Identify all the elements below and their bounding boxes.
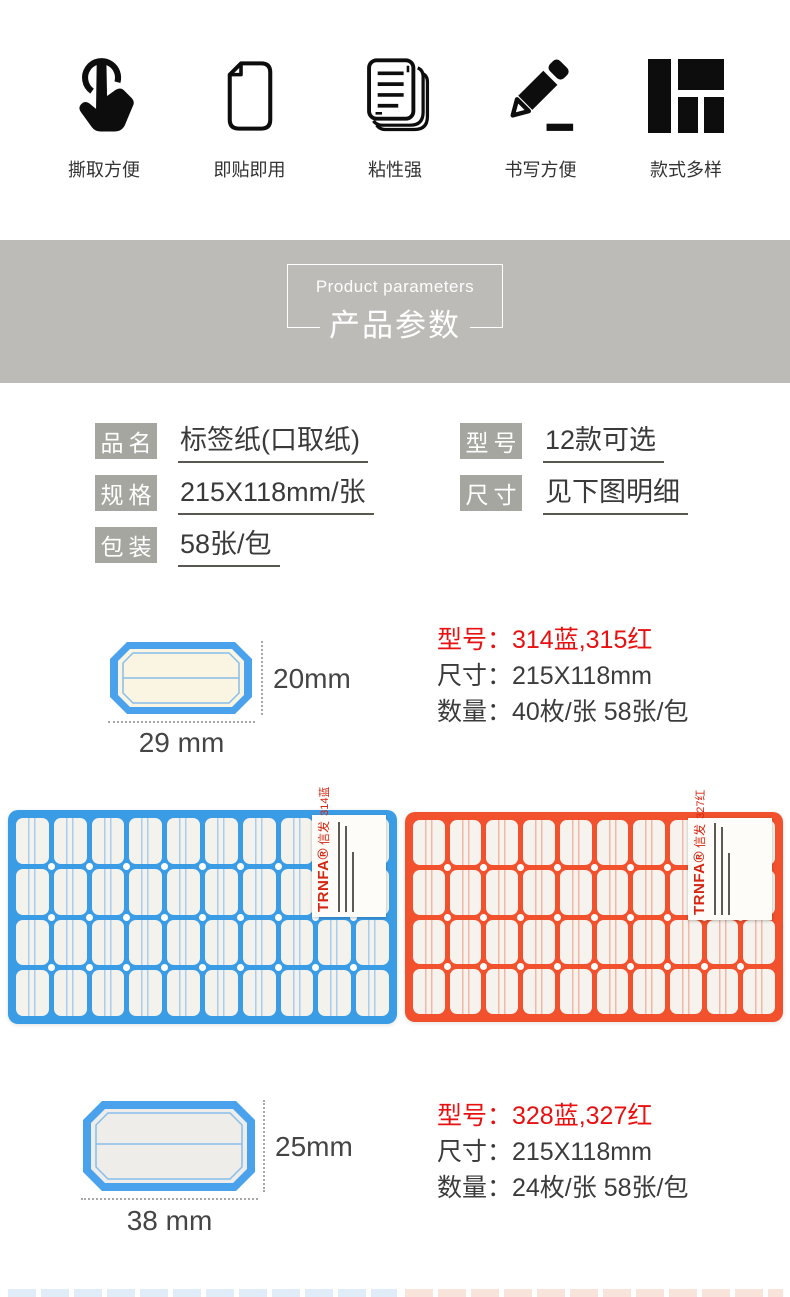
label-cell xyxy=(670,969,702,1014)
label-cell xyxy=(167,920,200,966)
label-cell xyxy=(486,870,518,915)
spec-size-line: 尺寸：215X118mm xyxy=(437,1134,688,1170)
label-cell xyxy=(450,920,482,965)
param-label: 型号 xyxy=(460,423,522,459)
dim-height-2: 25mm xyxy=(275,1131,353,1163)
label-cell xyxy=(243,920,276,966)
label-cell xyxy=(560,920,592,965)
feature-label: 即贴即用 xyxy=(214,156,286,182)
label-cell xyxy=(413,820,445,865)
label-cell xyxy=(281,869,314,915)
param-value: 58张/包 xyxy=(178,522,280,567)
dim-width-2: 38 mm xyxy=(81,1205,258,1237)
dim-line-width-1 xyxy=(108,721,255,723)
label-cell xyxy=(597,820,629,865)
dim-height-1: 20mm xyxy=(273,663,351,695)
sticker-address-line xyxy=(721,827,723,915)
label-cell xyxy=(597,870,629,915)
label-cell xyxy=(16,970,49,1016)
label-cell xyxy=(54,818,87,864)
label-cell xyxy=(486,969,518,1014)
label-cell xyxy=(318,970,351,1016)
label-cell xyxy=(281,818,314,864)
label-cell xyxy=(633,969,665,1014)
label-cell xyxy=(167,869,200,915)
feature-write: 书写方便 xyxy=(471,48,611,182)
spec-size-line: 尺寸：215X118mm xyxy=(437,658,688,694)
label-cell xyxy=(597,920,629,965)
feature-label: 撕取方便 xyxy=(68,156,140,182)
label-cell xyxy=(523,820,555,865)
dim-width-1: 29 mm xyxy=(108,727,255,759)
next-photo-strip-red xyxy=(405,1289,783,1297)
label-cell xyxy=(92,869,125,915)
param-value: 12款可选 xyxy=(543,418,664,463)
label-cell xyxy=(318,920,351,966)
label-cell xyxy=(413,920,445,965)
label-cell xyxy=(560,820,592,865)
label-cell xyxy=(281,970,314,1016)
label-cell xyxy=(356,920,389,966)
label-cell xyxy=(129,920,162,966)
brand-text: TRNFA®信发327红 xyxy=(691,823,709,915)
label-cell xyxy=(413,969,445,1014)
label-cell xyxy=(523,870,555,915)
feature-tear: 撕取方便 xyxy=(34,48,174,182)
feature-label: 书写方便 xyxy=(505,156,577,182)
param-label: 规格 xyxy=(95,475,157,511)
label-cell xyxy=(743,969,775,1014)
sticker-address-line xyxy=(714,823,716,915)
label-cell xyxy=(560,969,592,1014)
label-cell xyxy=(54,920,87,966)
label-cell xyxy=(92,920,125,966)
label-cell xyxy=(523,969,555,1014)
spec-model-line: 型号：328蓝,327红 xyxy=(437,1098,688,1134)
brand-sticker: TRNFA®信发327红 xyxy=(688,818,772,920)
banner-title-en: Product parameters xyxy=(288,277,502,297)
spec-block-2: 型号：328蓝,327红 尺寸：215X118mm 数量：24枚/张 58张/包 xyxy=(437,1098,688,1206)
label-cell xyxy=(597,969,629,1014)
param-value: 215X118mm/张 xyxy=(178,470,374,515)
label-cell xyxy=(92,970,125,1016)
dim-line-height-2 xyxy=(263,1100,265,1192)
spec-qty-line: 数量：40枚/张 58张/包 xyxy=(437,694,688,730)
banner-title-cn: 产品参数 xyxy=(320,300,470,345)
feature-row: 撕取方便 即贴即用 xyxy=(34,48,756,182)
param-value: 标签纸(口取纸) xyxy=(178,418,368,463)
feature-label: 粘性强 xyxy=(368,156,422,182)
label-cell xyxy=(281,920,314,966)
layout-grid-icon xyxy=(648,48,724,144)
param-row-name: 品名 标签纸(口取纸) xyxy=(95,418,368,463)
blue-label-sheet-photo: TRNFA®信发314蓝 xyxy=(8,810,397,1024)
label-cell xyxy=(450,870,482,915)
label-cell xyxy=(54,869,87,915)
label-cell xyxy=(486,920,518,965)
dim-line-width-2 xyxy=(81,1198,258,1200)
page-icon xyxy=(214,48,286,144)
label-cell xyxy=(450,820,482,865)
label-cell xyxy=(16,869,49,915)
label-cell xyxy=(413,870,445,915)
pencil-icon xyxy=(500,48,582,144)
param-row-spec: 规格 215X118mm/张 xyxy=(95,470,374,515)
product-detail-page: 撕取方便 即贴即用 xyxy=(0,0,790,1297)
label-cell xyxy=(707,969,739,1014)
tap-icon xyxy=(64,48,144,144)
spec-model-line: 型号：314蓝,315红 xyxy=(437,622,688,658)
spec-qty-line: 数量：24枚/张 58张/包 xyxy=(437,1170,688,1206)
feature-stick: 即贴即用 xyxy=(180,48,320,182)
brand-sticker: TRNFA®信发314蓝 xyxy=(312,815,386,917)
label-cell xyxy=(243,818,276,864)
param-label: 品名 xyxy=(95,423,157,459)
label-cell xyxy=(633,920,665,965)
label-cell xyxy=(450,969,482,1014)
section-banner: Product parameters 产品参数 xyxy=(0,240,790,383)
next-photo-strip-blue xyxy=(8,1289,397,1297)
label-cell xyxy=(743,920,775,965)
feature-adhesive: 粘性强 xyxy=(325,48,465,182)
label-cell xyxy=(243,970,276,1016)
label-cell xyxy=(486,820,518,865)
label-cell xyxy=(129,818,162,864)
label-cell xyxy=(205,970,238,1016)
label-cell xyxy=(167,970,200,1016)
sticker-address-line xyxy=(338,822,340,912)
spec-block-1: 型号：314蓝,315红 尺寸：215X118mm 数量：40枚/张 58张/包 xyxy=(437,622,688,730)
param-label: 尺寸 xyxy=(460,475,522,511)
brand-text: TRNFA®信发314蓝 xyxy=(315,820,333,912)
label-cell xyxy=(92,818,125,864)
param-row-size: 尺寸 见下图明细 xyxy=(460,470,688,515)
label-cell xyxy=(16,920,49,966)
label-illustration-small xyxy=(108,640,254,716)
label-cell xyxy=(167,818,200,864)
label-cell xyxy=(670,920,702,965)
label-cell xyxy=(205,920,238,966)
label-cell xyxy=(205,869,238,915)
param-row-pack: 包装 58张/包 xyxy=(95,522,280,567)
sticker-address-line xyxy=(352,852,354,912)
feature-variety: 款式多样 xyxy=(616,48,756,182)
label-cell xyxy=(633,820,665,865)
param-row-model: 型号 12款可选 xyxy=(460,418,664,463)
label-cell xyxy=(129,869,162,915)
notes-stack-icon xyxy=(355,48,435,144)
label-illustration-big xyxy=(81,1099,257,1193)
banner-frame: Product parameters 产品参数 xyxy=(287,264,503,328)
label-cell xyxy=(356,970,389,1016)
label-cell xyxy=(205,818,238,864)
label-cell xyxy=(560,870,592,915)
label-cell xyxy=(243,869,276,915)
param-value: 见下图明细 xyxy=(543,470,688,515)
feature-label: 款式多样 xyxy=(650,156,722,182)
label-cell xyxy=(707,920,739,965)
sticker-address-line xyxy=(345,826,347,912)
label-cell xyxy=(129,970,162,1016)
dim-line-height-1 xyxy=(261,641,263,715)
red-label-sheet-photo: TRNFA®信发327红 xyxy=(405,812,783,1022)
label-cell xyxy=(54,970,87,1016)
label-cell xyxy=(16,818,49,864)
sticker-address-line xyxy=(728,853,730,915)
param-label: 包装 xyxy=(95,527,157,563)
label-cell xyxy=(523,920,555,965)
label-cell xyxy=(633,870,665,915)
